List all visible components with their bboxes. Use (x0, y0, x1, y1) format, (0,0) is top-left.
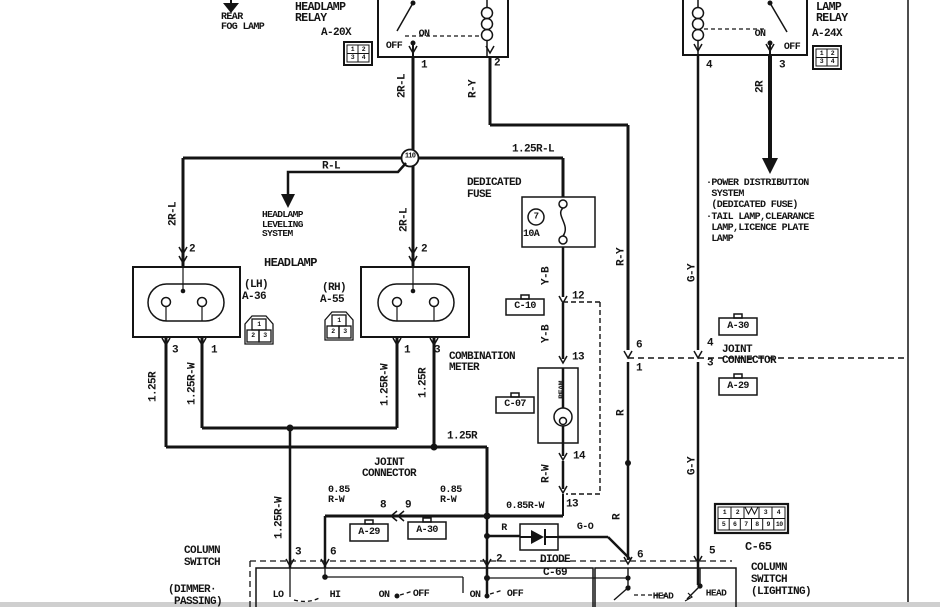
pin-number: 1 (636, 364, 642, 375)
pin-number: 1 (211, 346, 217, 357)
pin-number: 2 (494, 59, 500, 70)
wire-label-r: R (613, 514, 624, 520)
pin-number: 3 (707, 359, 713, 370)
headlamp-lh-code: A-36 (242, 292, 266, 303)
grid-pin: 6 (733, 521, 736, 528)
a29-connector-label: A-29 (727, 382, 749, 392)
c65-connector-code: C-65 (745, 541, 771, 553)
grid-pin: 4 (777, 510, 780, 517)
pin-number: 14 (573, 452, 585, 463)
pin-number: 2 (496, 555, 502, 566)
wire-label-1-25r-w: 1.25R-W (275, 497, 286, 539)
power-dist-arrow (762, 158, 778, 174)
grid-pin: 9 (766, 521, 769, 528)
dimmer-switch-internals (290, 568, 628, 601)
fuse-number: 7 (534, 212, 539, 223)
wire-label-y-b: Y-B (542, 267, 553, 285)
fuse-rating: 10A (523, 230, 539, 240)
a20x-pin-grid (344, 42, 372, 65)
grid-pin: 1 (351, 46, 354, 53)
pin-number: 9 (405, 501, 411, 512)
pin-number: 6 (330, 548, 336, 559)
c10-connector-label: C-10 (514, 302, 536, 312)
grid-pin: 5 (722, 521, 725, 528)
grid-pin: 3 (263, 333, 266, 340)
switch-pos-hi: HI (330, 591, 341, 601)
grid-pin: 8 (755, 521, 758, 528)
grid-pin: 4 (831, 59, 834, 66)
switch-pos-off: OFF (413, 590, 429, 600)
diode-code: C-69 (543, 568, 567, 579)
headlamp-relay-title: HEADLAMP RELAY (295, 2, 345, 24)
a29-connector-label: A-29 (358, 528, 380, 538)
wire-label-2r: 2R (756, 81, 767, 93)
pin-number: 3 (295, 548, 301, 559)
pin-number: 12 (572, 292, 584, 303)
headlamp-rh-code: A-55 (320, 295, 344, 306)
grid-pin: 1 (257, 321, 260, 328)
pin-number: 2 (421, 245, 427, 256)
wire-label-1-25r: 1.25R (419, 368, 430, 398)
pin-number: 3 (172, 346, 178, 357)
grid-pin: 2 (831, 50, 834, 57)
splice-110-label: 110 (405, 154, 415, 161)
rear-fog-lamp-label: REAR FOG LAMP (221, 13, 264, 33)
pin-number: 8 (380, 501, 386, 512)
pin-number: 4 (706, 61, 712, 72)
grid-pin: 1 (723, 510, 726, 517)
wire-label-1-25r: 1.25R (149, 372, 160, 402)
headlamp-lower-wires (166, 337, 487, 568)
grid-pin: 2 (736, 510, 739, 517)
wire-label-085rw: 0.85 R-W (328, 486, 350, 506)
switch-pos-on: ON (379, 591, 390, 601)
wire-label-1-25r-l: 1.25R-L (512, 145, 554, 156)
combination-meter (538, 368, 578, 443)
pin-number: 3 (779, 61, 785, 72)
a24x-pin-grid (813, 46, 841, 69)
feed-wires (183, 55, 770, 350)
grid-pin: 3 (764, 510, 767, 517)
tail-relay-off: OFF (784, 43, 800, 53)
wire-label-1-25r-w: 1.25R-W (188, 363, 199, 405)
headlamp-rh-label: (RH) (322, 283, 346, 294)
wire-label-r-w: R-W (542, 465, 553, 483)
headlamp-relay-on: ON (419, 30, 430, 40)
a30-connector-label: A-30 (416, 526, 438, 536)
c07-connector-label: C-07 (504, 400, 526, 410)
pin-number: 6 (637, 551, 643, 562)
grid-pin: 1 (337, 317, 340, 324)
wire-label-r: R (501, 524, 506, 534)
headlamp-relay-off: OFF (386, 42, 402, 52)
joint-connector-right-title: JOINT CONNECTOR (722, 345, 776, 367)
wire-label-1-25r-w: 1.25R-W (381, 364, 392, 406)
grid-pin: 1 (820, 50, 823, 57)
grid-pin: 7 (744, 521, 747, 528)
tail-relay-on: ON (755, 30, 766, 40)
a30-connector-label: A-30 (727, 322, 749, 332)
diode-title: DIODE (540, 555, 570, 566)
headlamp-lh (133, 247, 240, 345)
headlamp-rh (361, 247, 469, 345)
switch-pos-on: ON (470, 591, 481, 601)
wire-label-1-25r: 1.25R (447, 432, 477, 443)
leveling-branch (281, 163, 406, 208)
switch-pos-off: OFF (507, 590, 523, 600)
switch-pos-head: HEAD (706, 588, 726, 598)
wire-label-r-y: R-Y (469, 80, 480, 98)
column-switch-dimmer-subtitle: (DIMMER· PASSING) (168, 585, 222, 607)
pin-number: 3 (434, 346, 440, 357)
pin-number: 5 (709, 547, 715, 558)
grid-pin: 2 (331, 329, 334, 336)
pin-number: 6 (636, 341, 642, 352)
grid-pin: 4 (362, 55, 365, 62)
column-switch-lighting-title: COLUMN SWITCH (LIGHTING) (751, 562, 811, 598)
wire-label-r-l: R-L (322, 162, 340, 173)
meter-dashed-outline (563, 302, 600, 494)
tail-lamp-relay-code: A-24X (812, 29, 842, 40)
switch-pos-head: HEAD (653, 591, 673, 601)
column-switch-dimmer-title: COLUMN SWITCH (184, 546, 220, 569)
dedicated-fuse-title: DEDICATED FUSE (467, 178, 521, 201)
wire-label-g-y: G-Y (688, 264, 699, 282)
wire-label-085rw: 0.85R-W (506, 502, 544, 512)
destination-notes: ·POWER DISTRIBUTION SYSTEM (DEDICATED FU… (706, 178, 814, 245)
headlamp-leveling-label: HEADLAMP LEVELING SYSTEM (262, 210, 303, 239)
tail-lamp-relay-title: LAMP RELAY (816, 2, 848, 24)
headlamp-relay-code: A-20X (321, 28, 351, 39)
wire-label-r: R (617, 410, 628, 416)
grid-pin: 3 (343, 329, 346, 336)
pin-number: 1 (404, 346, 410, 357)
pin-number: 13 (572, 353, 584, 364)
grid-pin: 10 (776, 521, 783, 528)
wire-label-085rw: 0.85 R-W (440, 486, 462, 506)
wire-label-2r-l: 2R-L (169, 202, 180, 226)
grid-pin: 3 (351, 55, 354, 62)
pin-number: 13 (566, 500, 578, 511)
pin-number: 1 (421, 61, 427, 72)
joint-connector-mid-title: JOINT CONNECTOR (362, 458, 416, 480)
combination-meter-title: COMBINATION METER (449, 352, 515, 374)
grid-pin: 3 (820, 59, 823, 66)
headlamp-title: HEADLAMP (264, 257, 317, 269)
wire-label-g-y: G-Y (688, 457, 699, 475)
grid-pin: 2 (251, 333, 254, 340)
wire-label-r-y: R-Y (617, 248, 628, 266)
wire-label-2r-l: 2R-L (398, 74, 409, 98)
beam-indicator-label: BEAM (558, 381, 567, 399)
switch-pos-lo: LO (273, 591, 284, 601)
headlamp-lh-label: (LH) (244, 280, 268, 291)
pin-number: 2 (189, 245, 195, 256)
pin-number: 4 (707, 339, 713, 350)
grid-pin: 2 (362, 46, 365, 53)
wire-label-y-b: Y-B (542, 325, 553, 343)
wiring-diagram-page: REAR FOG LAMP HEADLAMP RELAY A-20X ON OF… (0, 0, 940, 607)
wire-label-2r-l: 2R-L (400, 208, 411, 232)
wire-label-g-o: G-O (577, 523, 593, 533)
